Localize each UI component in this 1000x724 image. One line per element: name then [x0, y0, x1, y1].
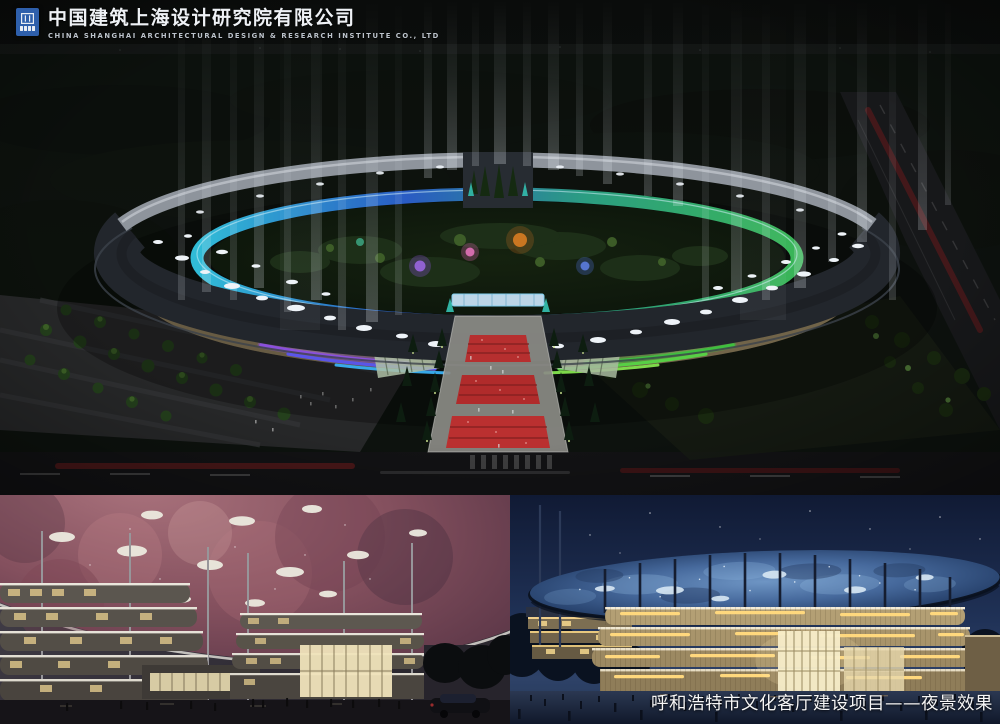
nebula-scene [0, 495, 510, 724]
company-logo: 中国建筑上海设计研究院有限公司 CHINA SHANGHAI ARCHITECT… [16, 8, 440, 40]
presentation-board: 中国建筑上海设计研究院有限公司 CHINA SHANGHAI ARCHITECT… [0, 0, 1000, 724]
central-glass [778, 631, 840, 693]
ground-view-nebula-canopy [0, 495, 510, 724]
company-name-zh: 中国建筑上海设计研究院有限公司 [48, 8, 440, 29]
gold-building [592, 607, 1000, 693]
seal-glyph [21, 13, 34, 24]
logo-letters [20, 26, 35, 31]
project-caption: 呼和浩特市文化客厅建设项目——夜景效果 [651, 690, 993, 715]
aerial-night-rendering [0, 0, 1000, 495]
aerial-scene [0, 0, 1000, 495]
cscec-logo-icon [16, 8, 39, 36]
vignette [0, 0, 1000, 495]
company-name-en: CHINA SHANGHAI ARCHITECTURAL DESIGN & RE… [48, 32, 440, 40]
